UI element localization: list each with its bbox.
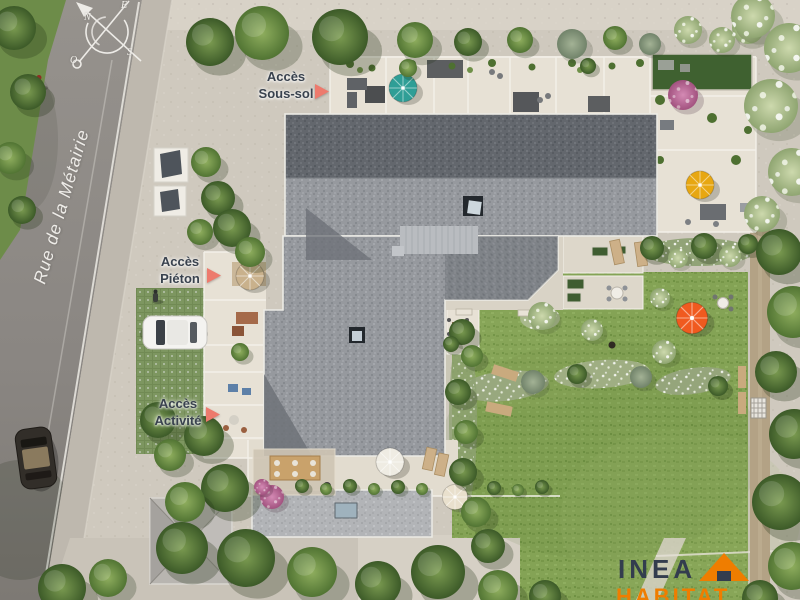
access-arrow-activite — [205, 406, 221, 423]
arrow-right-icon — [207, 268, 221, 283]
aerial-site-plan: N E S O Rue de la Métairie Accès Sous-so… — [0, 0, 800, 600]
access-arrow-pieton — [206, 267, 222, 284]
arrow-right-icon — [206, 407, 220, 422]
arrow-right-icon — [315, 84, 329, 99]
white-car — [140, 316, 208, 349]
entrance-canopies — [154, 148, 188, 216]
green-roof — [652, 54, 752, 90]
garden-path — [750, 230, 770, 600]
aerial-render — [0, 0, 800, 600]
drain-grate — [751, 398, 766, 418]
roof-deck — [392, 226, 478, 256]
access-arrow-sous-sol — [314, 83, 330, 100]
